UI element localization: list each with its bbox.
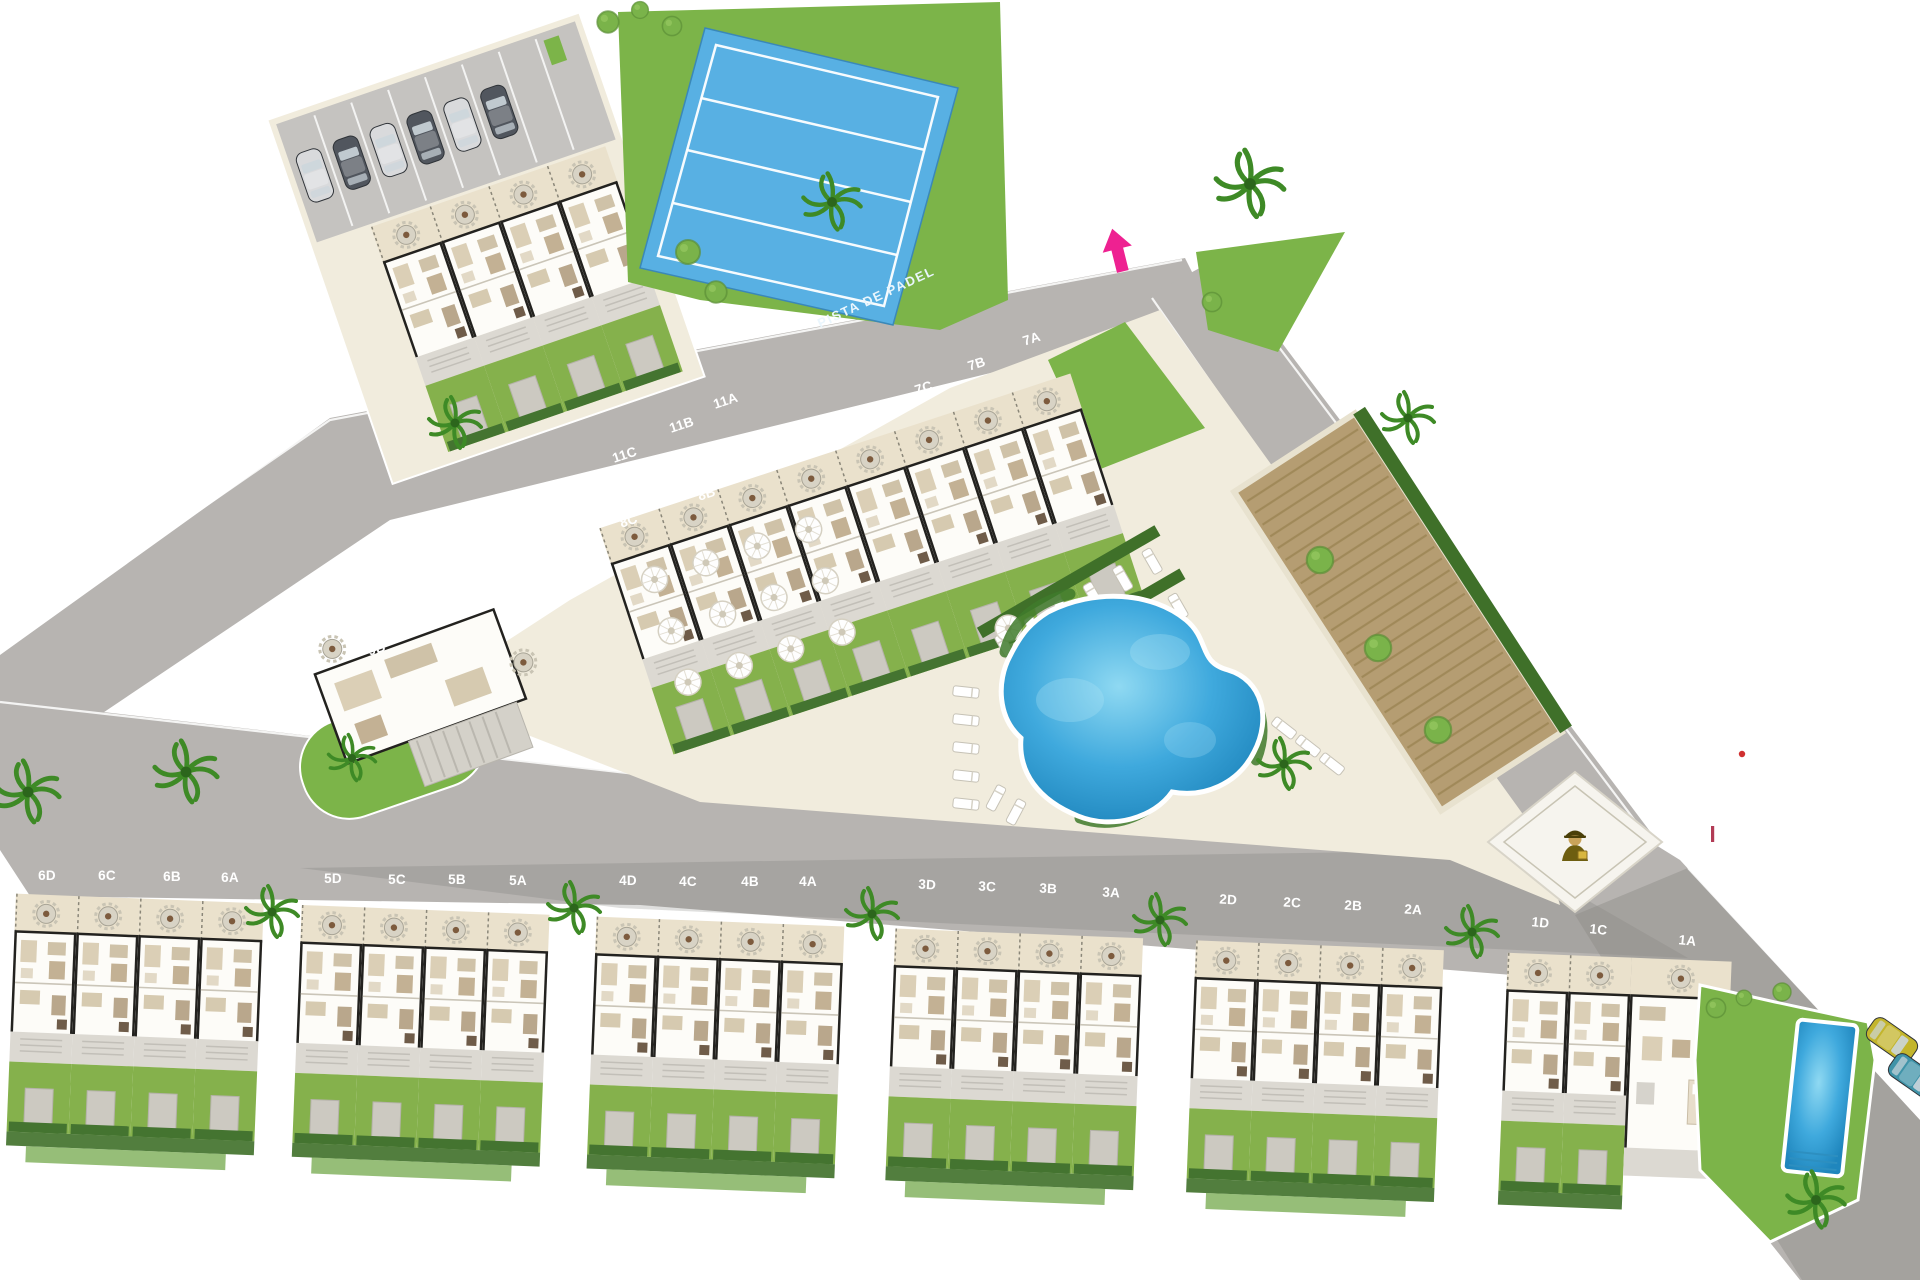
- house-unit-5C: [354, 907, 425, 1147]
- unit-label-1A: 1A: [1678, 932, 1697, 949]
- house-unit-5A: [478, 912, 549, 1152]
- unit-label-1C: 1C: [1589, 921, 1608, 938]
- house-unit-5B: [416, 910, 487, 1150]
- bush-icon: [632, 2, 649, 19]
- block-6: [5, 894, 263, 1172]
- unit-label-5D: 5D: [324, 871, 342, 886]
- bush-icon: [1202, 292, 1221, 311]
- unit-label-2A: 2A: [1404, 902, 1423, 918]
- unit-label-4D: 4D: [619, 873, 637, 888]
- site-plan: PISTA DE PADEL: [0, 0, 1920, 1280]
- unit-label-6D: 6D: [38, 868, 56, 883]
- red-dash-marker: [1711, 826, 1714, 842]
- unit-label-3B: 3B: [1039, 881, 1058, 897]
- house-unit-1D: [1498, 953, 1569, 1193]
- block-3: [885, 928, 1143, 1206]
- palm-tree-icon: [1216, 150, 1284, 216]
- unit-label-7D: 7D: [856, 404, 878, 424]
- unit-label-2D: 2D: [1219, 892, 1238, 908]
- unit-label-8D: 8D: [568, 535, 590, 555]
- house-unit-3A: [1072, 936, 1143, 1176]
- garden-tree: [1365, 635, 1391, 661]
- unit-label-6A: 6A: [221, 870, 239, 885]
- house-unit-6D: [7, 894, 78, 1134]
- house-unit-4B: [711, 922, 782, 1162]
- unit-label-5A: 5A: [509, 873, 527, 888]
- site-plan-image: PISTA DE PADEL: [0, 0, 1920, 1280]
- unit-label-4C: 4C: [679, 874, 697, 889]
- unit-label-2C: 2C: [1283, 895, 1302, 911]
- garden-tree: [1425, 717, 1451, 743]
- bush-icon: [705, 281, 727, 303]
- unit-label-5C: 5C: [388, 872, 406, 887]
- block-5: [291, 905, 549, 1183]
- house-unit-2C: [1249, 943, 1320, 1183]
- house-unit-2B: [1311, 945, 1382, 1185]
- unit-label-6B: 6B: [163, 869, 181, 884]
- unit-label-3D: 3D: [918, 877, 937, 893]
- unit-label-8A: 8A: [756, 454, 778, 474]
- unit-label-3A: 3A: [1102, 885, 1121, 901]
- unit-label-4B: 4B: [741, 874, 759, 889]
- unit-label-5B: 5B: [448, 872, 466, 887]
- block-2: [1185, 940, 1443, 1218]
- unit-label-2B: 2B: [1344, 898, 1363, 914]
- house-unit-6A: [192, 901, 263, 1141]
- bush-icon: [676, 240, 700, 264]
- bush-icon: [662, 16, 681, 35]
- house-unit-3D: [886, 928, 957, 1168]
- house-unit-6B: [130, 899, 201, 1139]
- house-unit-4A: [773, 924, 844, 1164]
- garden-tree: [1307, 547, 1333, 573]
- palm-tree-icon: [1382, 392, 1434, 443]
- red-dot-marker: [1739, 751, 1745, 757]
- house-unit-2A: [1372, 948, 1443, 1188]
- unit-label-4A: 4A: [799, 874, 817, 889]
- unit-1A-garden: [1695, 983, 1875, 1242]
- unit-label-1D: 1D: [1531, 914, 1550, 931]
- house-unit-3C: [948, 931, 1019, 1171]
- bush-icon: [597, 11, 619, 33]
- house-unit-4D: [587, 917, 658, 1157]
- house-unit-6C: [69, 896, 140, 1136]
- house-unit-2D: [1187, 940, 1258, 1180]
- unit-label-6C: 6C: [98, 868, 116, 883]
- house-unit-3B: [1010, 933, 1081, 1173]
- house-unit-1C: [1560, 955, 1631, 1195]
- house-unit-5D: [292, 905, 363, 1145]
- house-unit-4C: [649, 919, 720, 1159]
- block-4: [586, 917, 844, 1195]
- unit-label-9A: 9A: [483, 585, 505, 605]
- entrance-arrow-icon: [1098, 225, 1138, 275]
- unit-label-3C: 3C: [978, 879, 997, 895]
